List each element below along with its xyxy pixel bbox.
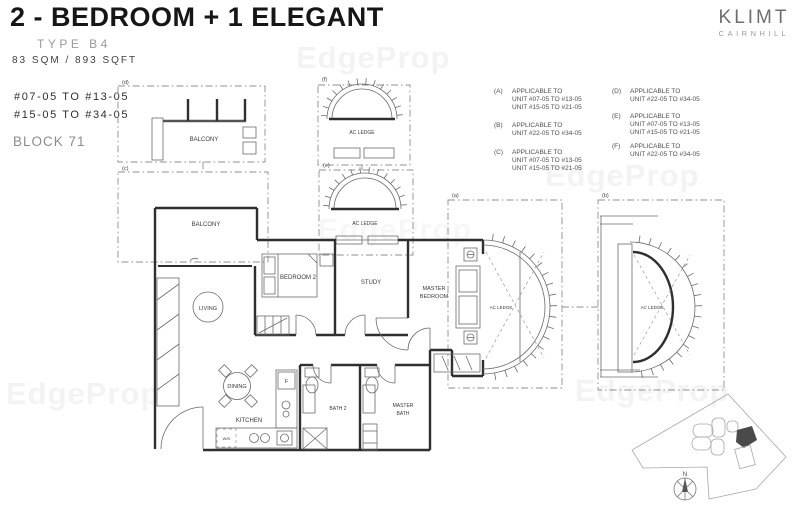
- doors: [161, 258, 430, 449]
- site-highlighted-block: [736, 426, 757, 448]
- site-plan: [632, 394, 786, 499]
- label-fridge: F: [285, 379, 289, 385]
- room-label-kitchen: KITCHEN: [236, 418, 262, 424]
- room-label-study: STUDY: [361, 280, 381, 286]
- bay-a: AC LEDGE: [483, 234, 557, 380]
- marker-b: (b): [602, 193, 609, 199]
- room-label-ac-ledge: AC LEDGE: [490, 305, 513, 310]
- north-arrow-icon: [682, 478, 688, 492]
- room-label-ac-ledge: AC LEDGE: [641, 305, 664, 310]
- marker-c: (c): [122, 166, 129, 172]
- living-furniture: [157, 278, 223, 406]
- room-label-balcony: BALCONY: [192, 222, 221, 228]
- marker-a: (a): [452, 193, 459, 199]
- ac-ledge-e: AC LEDGE: [323, 167, 407, 244]
- room-label-balcony-upper: BALCONY: [190, 137, 219, 143]
- room-label-master-1: MASTER: [423, 286, 446, 292]
- option-boxes: [118, 85, 724, 390]
- floor-plan: (d) (c) (f) (e) (a) (b) BALCONY AC LEDGE: [0, 0, 800, 512]
- room-label-ac-ledge: AC LEDGE: [349, 130, 375, 136]
- marker-e: (e): [323, 163, 330, 169]
- room-label-dining: DINING: [227, 384, 246, 390]
- label-washer-dryer: W/D: [223, 436, 231, 441]
- room-label-master-bath-1: MASTER: [393, 403, 414, 409]
- room-label-master-2: BEDROOM: [420, 294, 449, 300]
- ac-ledge-f: AC LEDGE: [321, 78, 403, 158]
- room-label-living: LIVING: [199, 306, 217, 312]
- compass: N: [674, 471, 696, 500]
- marker-d: (d): [122, 80, 129, 86]
- upper-balcony: BALCONY: [152, 99, 256, 160]
- master-furniture: [434, 248, 480, 372]
- room-label-master-bath-2: BATH: [397, 411, 410, 417]
- bay-b: AC LEDGE: [600, 216, 702, 378]
- floorplan-page: EdgeProp EdgeProp EdgeProp EdgeProp Edge…: [0, 0, 800, 512]
- compass-north-label: N: [683, 471, 688, 478]
- room-label-ac-ledge: AC LEDGE: [352, 221, 378, 227]
- bedroom2-furniture: [257, 254, 333, 335]
- marker-f: (f): [322, 77, 327, 83]
- room-label-bedroom2: BEDROOM 2: [280, 275, 317, 281]
- room-label-bath2: BATH 2: [329, 406, 346, 412]
